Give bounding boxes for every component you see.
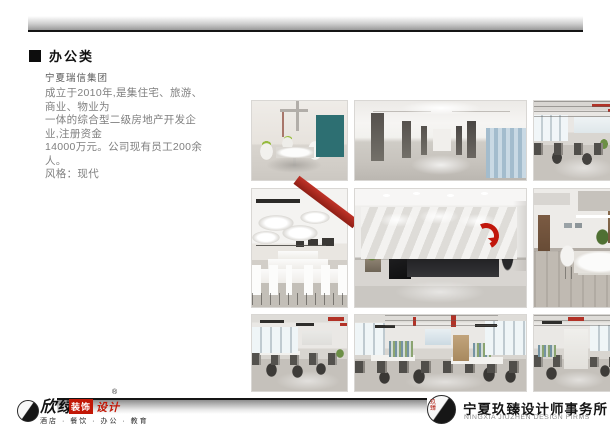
xinlv-accent-text: 设计 [96, 399, 120, 415]
portfolio-slide: 办公类 宁夏瑞信集团 成立于2010年,是集住宅、旅游、商业、物业为 一体的综合… [0, 0, 610, 431]
jiuzhen-seal-icon: 玖臻 [427, 395, 456, 424]
red-beam-shape [293, 176, 358, 229]
xinlv-seal-icon [17, 400, 39, 422]
photo-open-office-c [354, 314, 527, 392]
photo-conference-room [251, 188, 348, 308]
registered-trademark-mark: ® [112, 389, 117, 396]
category-heading: 办公类 [29, 46, 94, 65]
photo-open-office-b [251, 314, 348, 392]
jiuzhen-seal-chars: 玖臻 [430, 400, 437, 412]
project-description: 成立于2010年,是集住宅、旅游、商业、物业为 一体的综合型二级房地产开发企业,… [45, 87, 210, 182]
xinlv-badge: 装饰 [69, 399, 93, 414]
category-bullet-icon [29, 50, 41, 62]
jiuzhen-brand-logo: 玖臻 宁夏玖臻设计师事务所 NINGXIA JIUZHEN DESIGN FIR… [427, 392, 597, 428]
photo-reception-wall [354, 188, 527, 308]
photo-open-office-a [533, 100, 610, 181]
red-arrow-logo-icon [470, 220, 503, 253]
photo-open-office-d [533, 314, 610, 392]
description-line: 14000万元。公司现有员工200余人。 [45, 141, 210, 168]
xinlv-tagline: 酒店 · 餐饮 · 办公 · 教育 [40, 416, 149, 426]
description-line: 成立于2010年,是集住宅、旅游、商业、物业为 [45, 87, 210, 114]
description-line: 一体的综合型二级房地产开发企业,注册资金 [45, 114, 210, 141]
photo-manager-office [533, 188, 610, 308]
style-line: 风格：现代 [45, 168, 210, 182]
category-label: 办公类 [49, 46, 94, 65]
client-name: 宁夏瑞信集团 [45, 70, 108, 84]
photo-meeting-room [251, 100, 348, 181]
xinlv-brand-logo: 欣绿 装饰 设计 ® 酒店 · 餐饮 · 办公 · 教育 [16, 388, 176, 428]
photo-corridor [354, 100, 527, 181]
firm-name-english: NINGXIA JIUZHEN DESIGN FIRMS [464, 414, 590, 421]
top-rule [28, 16, 583, 32]
